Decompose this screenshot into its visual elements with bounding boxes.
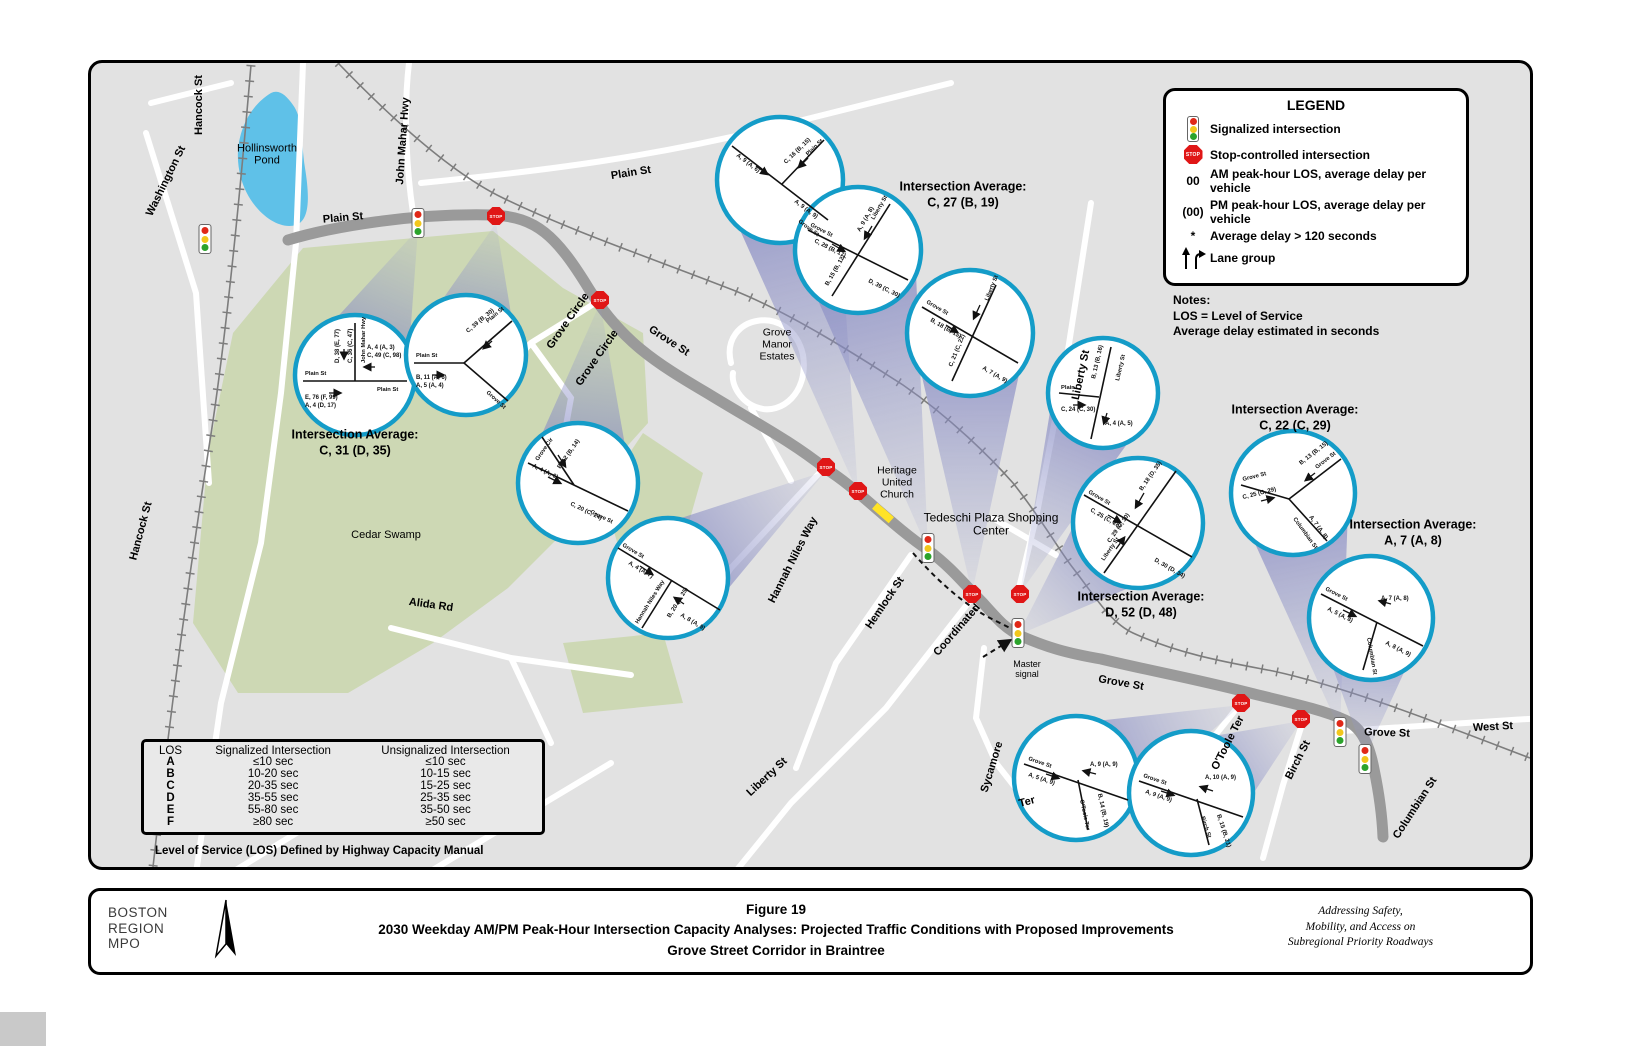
street-label-grove-circle-b: Grove Circle	[573, 328, 620, 388]
north-arrow-icon	[209, 898, 243, 971]
street-label-otoole-ter: O'Toole Ter	[1209, 714, 1246, 772]
intersection-average-columbian-south: Intersection Average:A, 7 (A, 8)	[1350, 517, 1477, 548]
place-label-cedar-swamp: Cedar Swamp	[351, 529, 421, 541]
stop-sign-icon-heritage: STOP	[817, 458, 835, 476]
los-row-e: E55-80 sec35-50 sec	[150, 805, 536, 817]
street-label-grove-st-mid: Grove St	[647, 323, 692, 358]
footer-tagline: Addressing Safety,Mobility, and Access o…	[1253, 904, 1468, 951]
street-label-liberty-st-lower: Liberty St	[744, 755, 789, 798]
los-row-c: C20-35 sec15-25 sec	[150, 781, 536, 793]
legend-item-pm-los: (00) PM peak-hour LOS, average delay per…	[1176, 198, 1456, 226]
traffic-signal-icon	[1187, 116, 1199, 142]
street-label-columbian-st: Columbian St	[1391, 775, 1440, 841]
legend-item-lane-group: Lane group	[1176, 246, 1456, 270]
legend-item-delay-star: * Average delay > 120 seconds	[1176, 229, 1456, 243]
street-label-grove-circle-a: Grove Circle	[544, 291, 591, 351]
figure-subtitle: Grove Street Corridor in Braintree	[281, 941, 1271, 961]
street-label-hannah-niles-way: Hannah Niles Way	[766, 515, 820, 605]
stop-sign-icon-hannah-niles: STOP	[849, 482, 867, 500]
stop-sign-icon-otoole: STOP	[1232, 694, 1250, 712]
los-table-header: LOSSignalized IntersectionUnsignalized I…	[150, 745, 536, 757]
legend-item-signalized: Signalized intersection	[1176, 116, 1456, 142]
signal-icon-columbian	[1359, 744, 1372, 774]
place-label-tedeschi-plaza: Tedeschi Plaza Shopping Center	[911, 512, 1071, 539]
legend-item-am-los: 00 AM peak-hour LOS, average delay per v…	[1176, 167, 1456, 195]
los-row-a: A≤10 sec≤10 sec	[150, 757, 536, 769]
place-label-heritage-united-church: Heritage United Church	[868, 465, 926, 500]
street-label-ter: Ter	[1018, 794, 1037, 810]
street-label-grove-st-lower: Grove St	[1097, 673, 1144, 693]
stop-sign-icon-tedeschi-drive: STOP	[963, 585, 981, 603]
street-label-plain-st-west: Plain St	[322, 210, 363, 225]
street-label-washington-st: Washington St	[144, 144, 188, 218]
los-row-d: D35-55 sec25-35 sec	[150, 793, 536, 805]
lane-group-icon	[1179, 246, 1207, 270]
figure-main-title: 2030 Weekday AM/PM Peak-Hour Intersectio…	[281, 920, 1271, 940]
footer-panel: BOSTONREGIONMPO Figure 19 2030 Weekday A…	[88, 888, 1533, 975]
street-label-hancock-st-left: Hancock St	[127, 501, 154, 562]
street-label-hemlock-st: Hemlock St	[863, 575, 906, 631]
stop-sign-icon-liberty-drive: STOP	[1011, 585, 1029, 603]
signal-icon-tedeschi	[922, 533, 935, 563]
intersection-average-grove-liberty: Intersection Average:D, 52 (D, 48)	[1078, 589, 1205, 620]
intersection-average-grove-plain: Intersection Average:C, 27 (B, 19)	[900, 179, 1027, 210]
legend: LEGEND Signalized intersection STOP Stop…	[1163, 88, 1469, 286]
street-label-alida-rd: Alida Rd	[408, 596, 454, 614]
figure-title: Figure 19 2030 Weekday AM/PM Peak-Hour I…	[281, 900, 1271, 961]
street-label-sycamore: Sycamore	[979, 740, 1006, 794]
map-overlay: Washington St Hancock St Hancock St Holl…	[91, 63, 1533, 870]
label-coordinated: Coordinated	[931, 602, 983, 659]
signal-icon-john-mahar	[412, 208, 425, 238]
street-label-west-st: West St	[1473, 720, 1514, 734]
street-label-hancock-st-top: Hancock St	[193, 75, 205, 135]
place-label-hollinsworth-pond: Hollinsworth Pond	[224, 143, 310, 168]
place-label-grove-manor-estates: Grove Manor Estates	[747, 327, 807, 362]
signal-icon-master	[1012, 618, 1025, 648]
intersection-average-plain-john-mahar: Intersection Average:C, 31 (D, 35)	[292, 427, 419, 458]
signal-icon-washington-hancock	[199, 224, 212, 254]
street-label-birch-st: Birch St	[1283, 738, 1313, 781]
legend-item-stop-controlled: STOP Stop-controlled intersection	[1176, 145, 1456, 164]
map-panel: Plain St Plain St John Mahar Hwy C, 36 (…	[88, 60, 1533, 870]
corner-chip	[0, 1012, 46, 1046]
asterisk-symbol: *	[1176, 229, 1210, 243]
signal-icon-grove-west	[1334, 717, 1347, 747]
am-los-symbol: 00	[1176, 174, 1210, 188]
stop-sign-icon-birch: STOP	[1292, 710, 1310, 728]
stop-sign-icon-grove-circle: STOP	[591, 291, 609, 309]
stop-sign-icon: STOP	[1184, 145, 1203, 164]
figure-number: Figure 19	[281, 900, 1271, 920]
stop-sign-icon-plain-grove: STOP	[487, 207, 505, 225]
street-label-grove-st-right: Grove St	[1364, 726, 1410, 740]
street-label-liberty-st-upper: Liberty St	[1070, 349, 1092, 401]
legend-notes: Notes: LOS = Level of Service Average de…	[1173, 293, 1379, 340]
footer-org: BOSTONREGIONMPO	[108, 905, 168, 952]
legend-title: LEGEND	[1176, 97, 1456, 113]
pm-los-symbol: (00)	[1176, 205, 1210, 219]
street-label-john-mahar-hwy: John Mahar Hwy	[394, 97, 412, 185]
intersection-average-grove-columbian: Intersection Average:C, 22 (C, 29)	[1232, 402, 1359, 433]
los-row-f: F≥80 sec≥50 sec	[150, 817, 536, 829]
los-table: LOSSignalized IntersectionUnsignalized I…	[141, 739, 545, 835]
los-caption: Level of Service (LOS) Defined by Highwa…	[155, 845, 483, 857]
label-master-signal: Master signal	[1005, 659, 1049, 679]
street-label-plain-st-top: Plain St	[610, 164, 652, 182]
los-row-b: B10-20 sec10-15 sec	[150, 769, 536, 781]
